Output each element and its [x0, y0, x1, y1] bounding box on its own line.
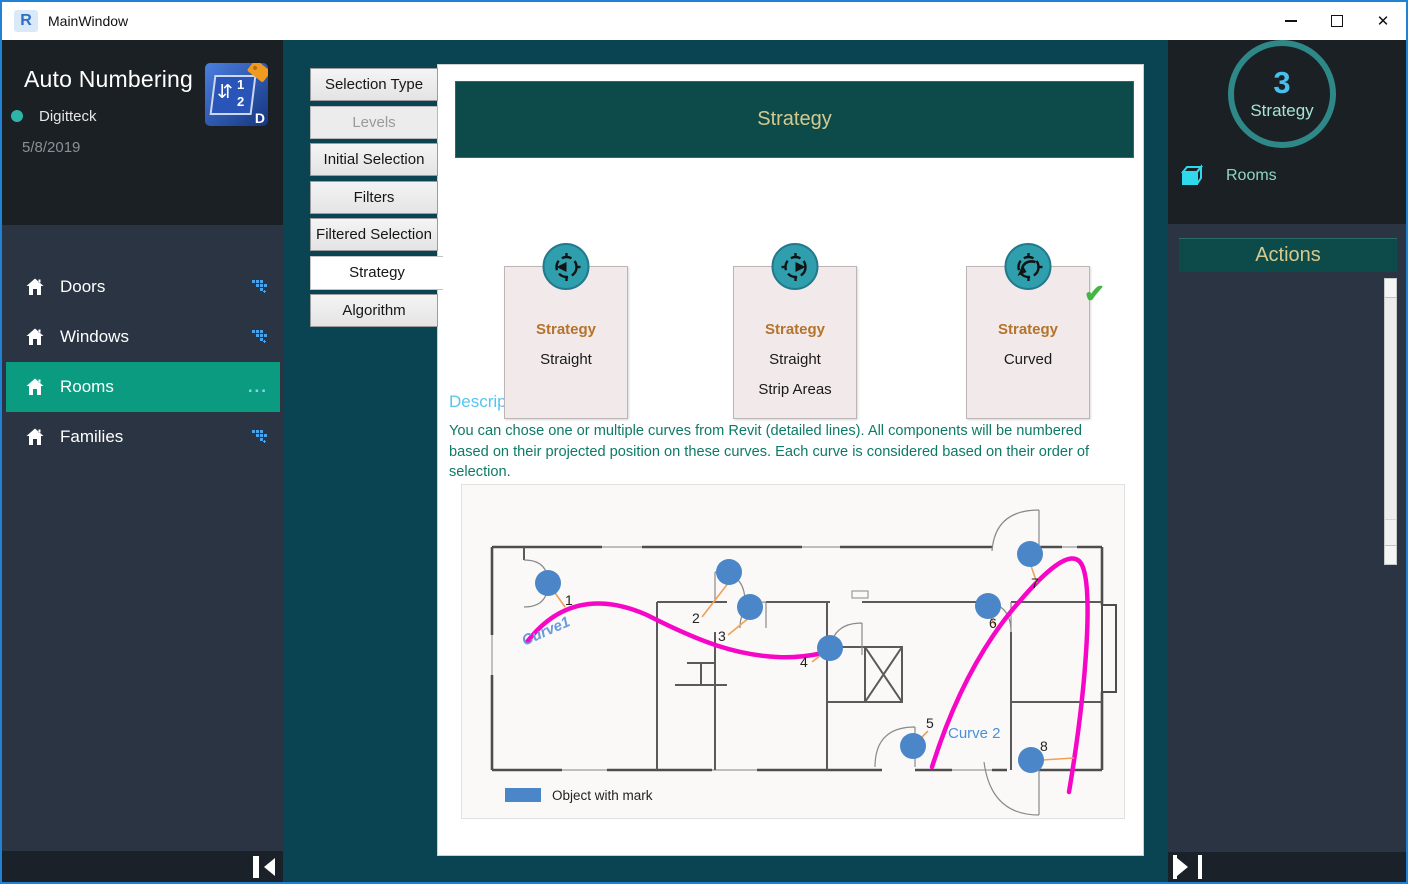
collapse-left-icon[interactable]	[264, 858, 275, 876]
compass-left-icon	[543, 243, 590, 290]
sidebar-item-label: Doors	[60, 277, 105, 297]
home-icon	[24, 377, 46, 397]
card-subtitle: Curved	[1004, 351, 1052, 368]
box-icon	[1180, 164, 1204, 188]
legend-swatch	[505, 788, 541, 802]
strategy-header-label: Strategy	[757, 108, 831, 131]
strategy-header: Strategy	[455, 81, 1134, 158]
curve1-label: Curve1	[519, 613, 572, 649]
step-label: Strategy	[1250, 101, 1313, 121]
right-sidebar: 3 Strategy Rooms Actions	[1168, 40, 1406, 882]
swap-arrows-icon: ⇵	[217, 81, 233, 104]
scrollbar-up-button[interactable]	[1385, 279, 1396, 298]
main-window: R MainWindow ✕ Auto Numbering Digitteck …	[0, 0, 1408, 884]
category-nav: Doors Windows Rooms ...	[2, 225, 283, 851]
svg-text:3: 3	[718, 628, 726, 644]
tab-algorithm[interactable]: Algorithm	[310, 294, 438, 327]
card-strategy-curved[interactable]: ✔ Strategy Curved	[966, 266, 1090, 419]
app-logo: ⇵ 1 2 D	[205, 63, 268, 126]
category-row: Rooms	[1180, 164, 1277, 188]
revit-app-icon: R	[14, 10, 38, 32]
close-button[interactable]: ✕	[1360, 2, 1406, 40]
svg-text:1: 1	[565, 592, 573, 608]
sidebar-header: Auto Numbering Digitteck 5/8/2019 ⇵ 1 2 …	[2, 40, 283, 225]
card-strategy-straight[interactable]: Strategy Straight	[504, 266, 628, 419]
logo-letter-d: D	[255, 110, 265, 126]
curve2-path	[932, 558, 1088, 792]
actions-section: Actions	[1168, 224, 1406, 852]
items-grid-icon[interactable]	[250, 278, 268, 296]
svg-text:8: 8	[1040, 738, 1048, 754]
sidebar-item-label: Rooms	[60, 377, 114, 397]
sidebar-item-doors[interactable]: Doors	[6, 262, 280, 312]
legend-label: Object with mark	[552, 788, 653, 803]
tab-levels[interactable]: Levels	[310, 106, 438, 139]
maximize-button[interactable]	[1314, 2, 1360, 40]
app-title: Auto Numbering	[24, 66, 193, 93]
card-subtitle-2: Strip Areas	[758, 381, 831, 398]
window-title: MainWindow	[48, 13, 128, 29]
card-subtitle: Straight	[769, 351, 821, 368]
floor-plan-image: 1 2 3 4 5 6 7 8 Curve1 Curve 2 Object wi…	[461, 484, 1125, 819]
actions-header: Actions	[1179, 238, 1397, 272]
sidebar-footer	[2, 851, 283, 882]
status-dot-icon	[11, 110, 23, 122]
category-label: Rooms	[1226, 167, 1277, 185]
selected-check-icon: ✔	[1084, 279, 1105, 309]
card-title: Strategy	[536, 321, 596, 338]
step-progress-ring: 3 Strategy	[1228, 40, 1336, 148]
logo-digit-1: 1	[237, 77, 244, 92]
items-grid-icon[interactable]	[250, 428, 268, 446]
tab-strategy[interactable]: Strategy	[310, 256, 443, 290]
tab-selection-type[interactable]: Selection Type	[310, 68, 438, 101]
sidebar-item-windows[interactable]: Windows	[6, 312, 280, 362]
home-icon	[24, 327, 46, 347]
actions-header-label: Actions	[1255, 244, 1321, 267]
minimize-icon	[1285, 20, 1297, 22]
step-number: 3	[1273, 67, 1290, 98]
expand-right-icon[interactable]	[1177, 858, 1188, 876]
floor-plan-svg: 1 2 3 4 5 6 7 8 Curve1 Curve 2 Object wi…	[462, 485, 1126, 820]
card-title: Strategy	[998, 321, 1058, 338]
home-icon	[24, 277, 46, 297]
interior-walls	[524, 547, 1102, 770]
compass-right-icon	[772, 243, 819, 290]
left-sidebar: Auto Numbering Digitteck 5/8/2019 ⇵ 1 2 …	[2, 40, 283, 882]
scrollbar-thumb[interactable]	[1385, 298, 1396, 520]
tab-filtered-selection[interactable]: Filtered Selection	[310, 218, 438, 251]
content-column: Selection Type Levels Initial Selection …	[283, 40, 1168, 882]
tab-filters[interactable]: Filters	[310, 181, 438, 214]
svg-text:6: 6	[989, 615, 997, 631]
sidebar-item-families[interactable]: Families	[6, 412, 280, 462]
rightbar-footer	[1168, 852, 1406, 882]
strategy-panel: Strategy Strategy Straight	[437, 64, 1144, 856]
curve1-path	[527, 604, 818, 658]
svg-text:7: 7	[1031, 575, 1039, 591]
title-bar: R MainWindow ✕	[2, 2, 1406, 40]
home-icon	[24, 427, 46, 447]
card-subtitle: Straight	[540, 351, 592, 368]
svg-text:4: 4	[800, 654, 808, 670]
items-grid-icon[interactable]	[250, 328, 268, 346]
summary-section: 3 Strategy Rooms	[1168, 40, 1406, 224]
window-controls: ✕	[1268, 2, 1406, 40]
svg-text:5: 5	[926, 715, 934, 731]
maximize-icon	[1331, 15, 1343, 27]
tab-initial-selection[interactable]: Initial Selection	[310, 143, 438, 176]
step-tabs: Selection Type Levels Initial Selection …	[310, 68, 438, 332]
svg-text:2: 2	[692, 610, 700, 626]
description-text: You can chose one or multiple curves fro…	[449, 421, 1103, 483]
scrollbar-down-button[interactable]	[1385, 545, 1396, 564]
strategy-cards: Strategy Straight Strategy	[438, 158, 1143, 388]
sidebar-item-label: Windows	[60, 327, 129, 347]
actions-scrollbar[interactable]	[1384, 278, 1397, 565]
collapse-bar-icon	[253, 856, 259, 878]
logo-digit-2: 2	[237, 94, 244, 109]
expand-bar2-icon	[1198, 855, 1202, 879]
minimize-button[interactable]	[1268, 2, 1314, 40]
sidebar-item-label: Families	[60, 427, 123, 447]
more-options-icon[interactable]: ...	[248, 382, 268, 392]
author-label: Digitteck	[39, 108, 97, 125]
curve2-label: Curve 2	[948, 725, 1001, 742]
close-icon: ✕	[1377, 12, 1390, 30]
date-label: 5/8/2019	[22, 139, 80, 156]
compass-curved-icon	[1005, 243, 1052, 290]
sidebar-item-rooms[interactable]: Rooms ...	[6, 362, 280, 412]
card-title: Strategy	[765, 321, 825, 338]
card-strategy-straight-strip[interactable]: Strategy Straight Strip Areas	[733, 266, 857, 419]
